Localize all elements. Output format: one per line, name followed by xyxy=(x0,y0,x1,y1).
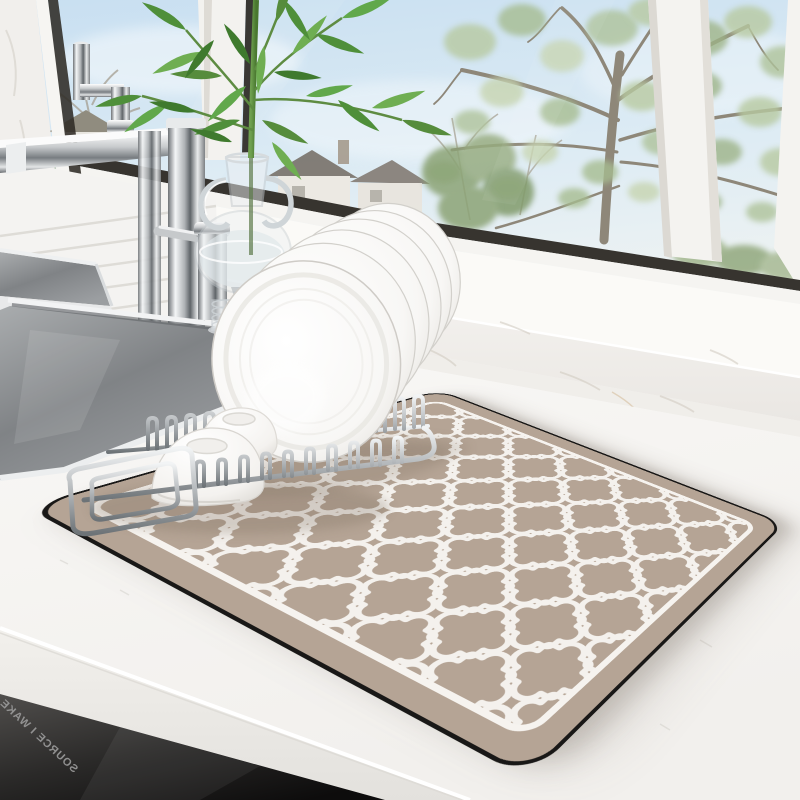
scene: SOURCE I WAKE xyxy=(0,0,800,800)
foreground xyxy=(0,0,800,800)
